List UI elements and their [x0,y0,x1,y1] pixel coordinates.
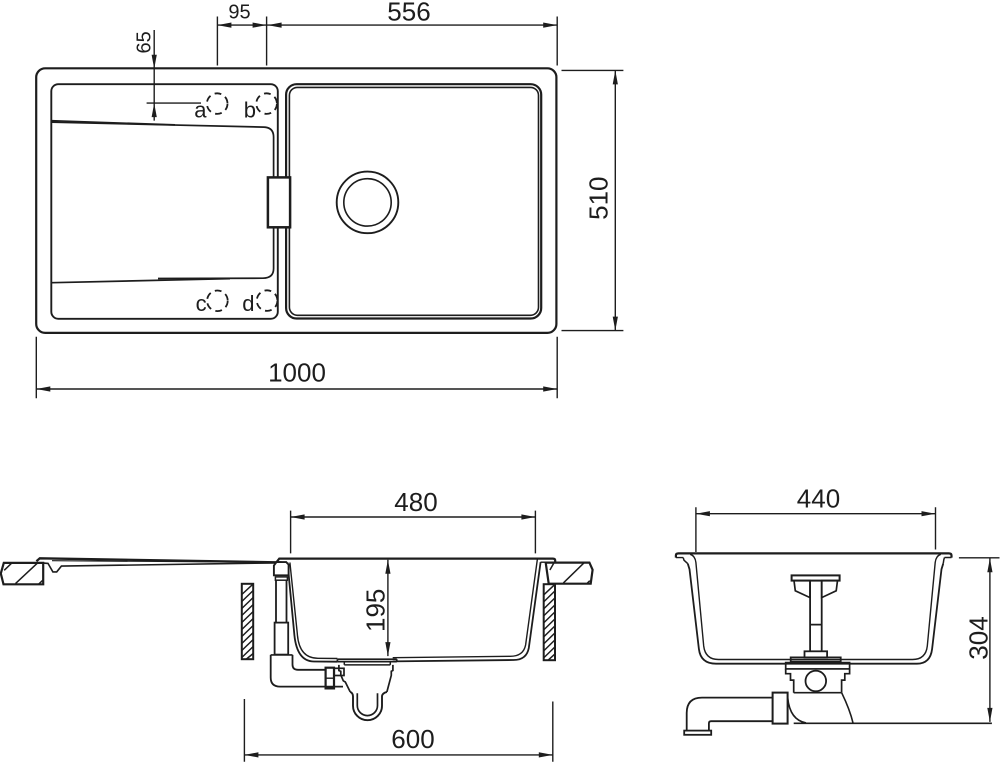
svg-text:195: 195 [361,589,391,632]
svg-text:d: d [242,291,254,316]
svg-text:440: 440 [797,483,840,513]
svg-text:600: 600 [391,724,434,754]
svg-text:556: 556 [387,0,430,27]
svg-text:95: 95 [228,2,250,24]
svg-text:a: a [194,97,207,122]
svg-text:304: 304 [964,616,994,659]
svg-text:480: 480 [394,487,437,517]
svg-text:1000: 1000 [268,357,326,387]
svg-text:65: 65 [134,31,156,53]
svg-text:c: c [196,291,207,316]
svg-text:b: b [244,97,256,122]
svg-text:510: 510 [584,177,614,220]
